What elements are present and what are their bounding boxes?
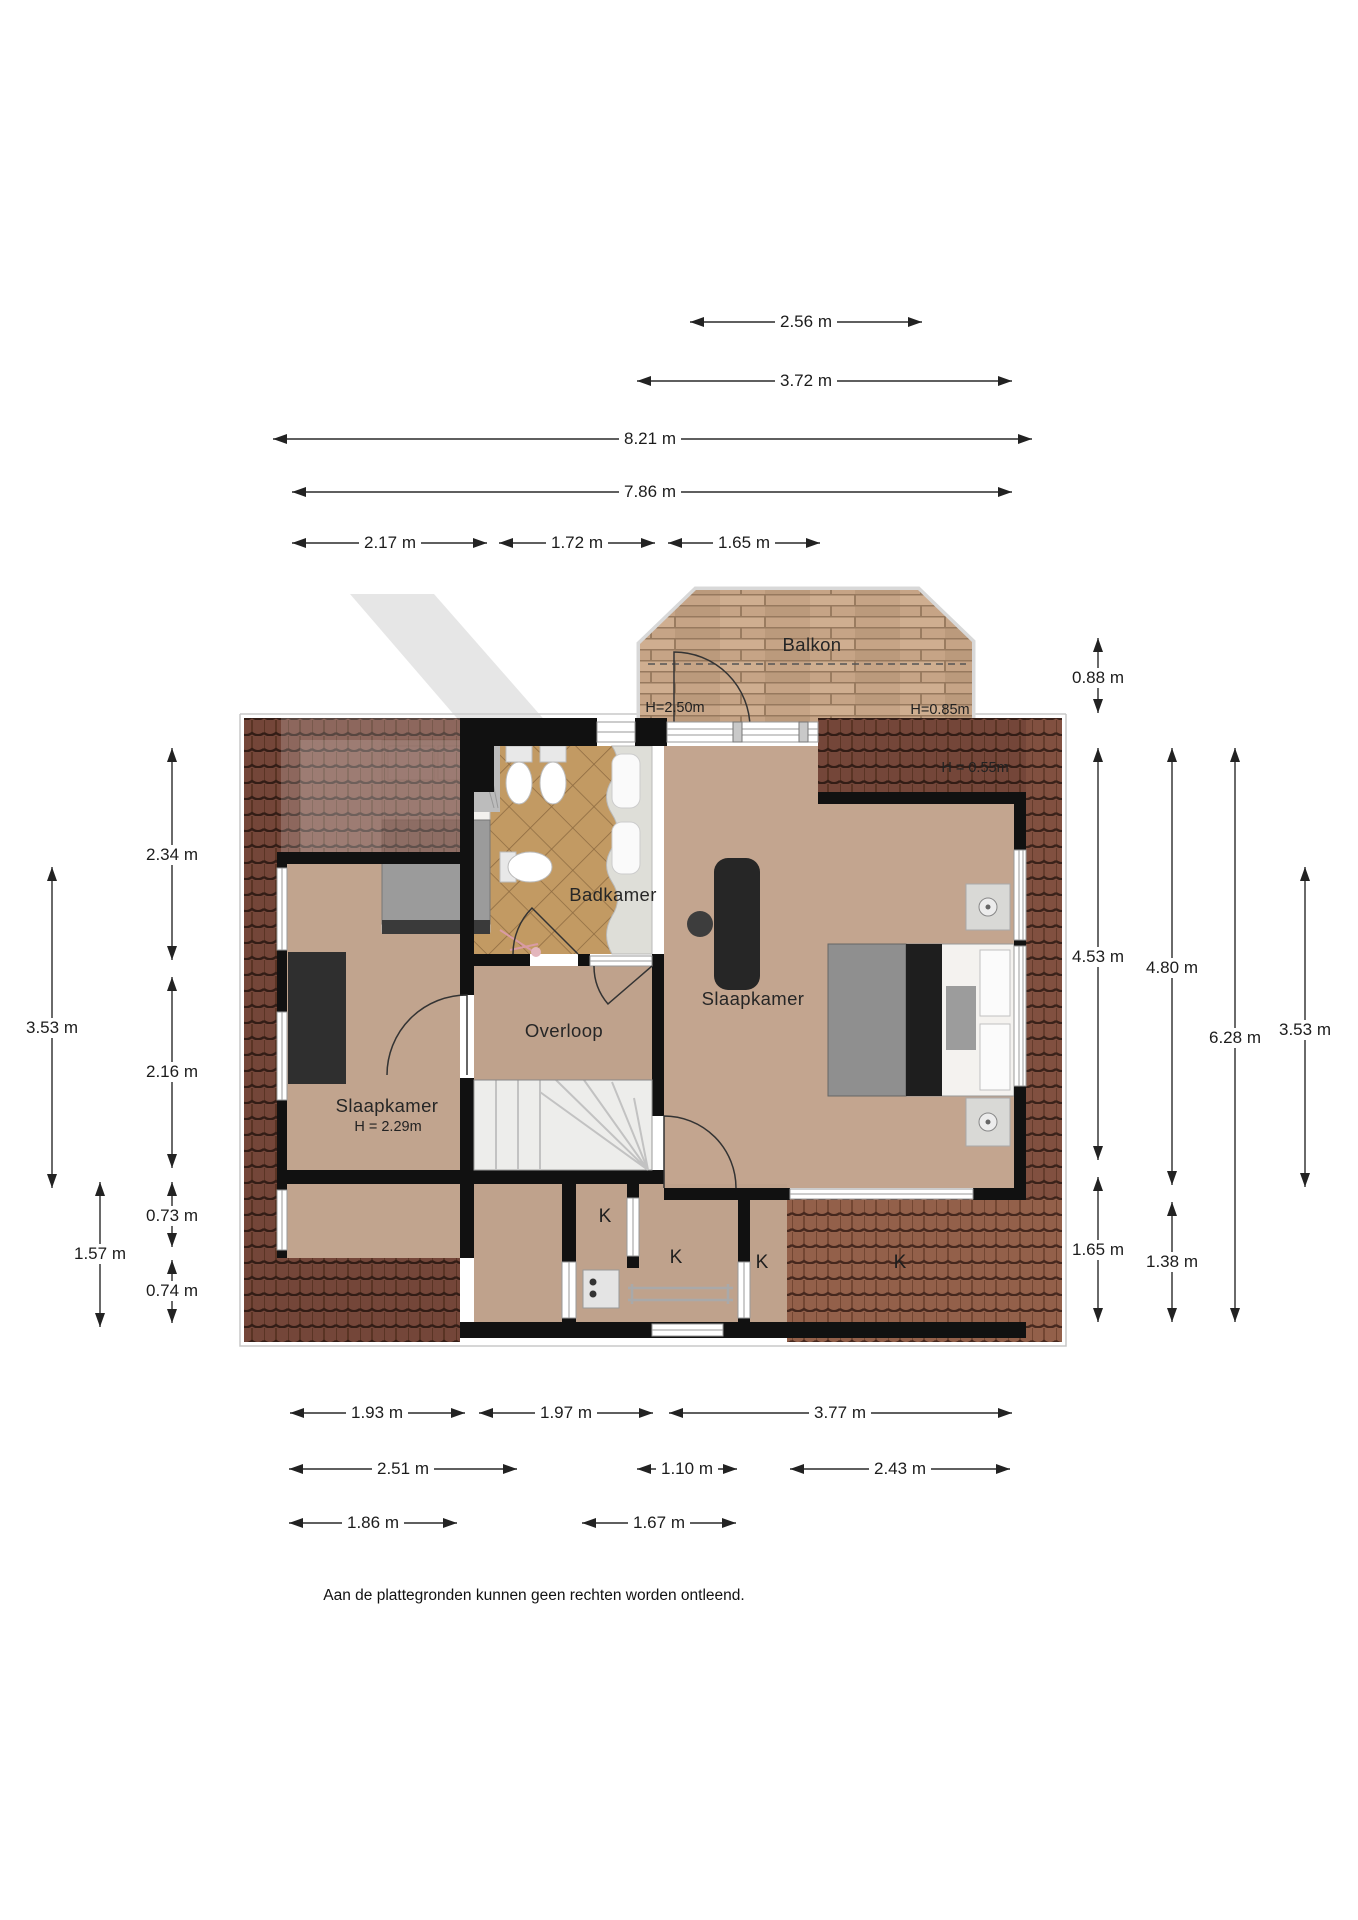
bed-right [828, 944, 1014, 1096]
dim-right-0-88: 0.88 m [1067, 668, 1129, 688]
room-label-balkon: Balkon [783, 634, 842, 656]
dim-bottom-2-43: 2.43 m [869, 1459, 931, 1479]
dim-bottom-1-86: 1.86 m [342, 1513, 404, 1533]
roof-bottom-right [787, 1198, 1062, 1342]
footer-disclaimer: Aan de plattegronden kunnen geen rechten… [323, 1587, 744, 1605]
wardrobe [288, 952, 346, 1084]
dormer-shadow [350, 594, 548, 724]
room-label-slaapkamer-right: Slaapkamer [702, 988, 805, 1010]
dim-top-2-17: 2.17 m [359, 533, 421, 553]
washing-machine [583, 1270, 619, 1308]
closet-label-3: K [756, 1252, 769, 1274]
dim-right-3-53: 3.53 m [1274, 1020, 1336, 1040]
height-label-balcony-door: H=2.50m [645, 700, 704, 716]
height-label-balcony-right: H=0.85m [910, 702, 969, 718]
dim-left-2-16: 2.16 m [141, 1062, 203, 1082]
closet-label-4: K [894, 1252, 907, 1274]
dim-right-1-38: 1.38 m [1141, 1252, 1203, 1272]
dim-bottom-2-51: 2.51 m [372, 1459, 434, 1479]
nightstand-top [966, 884, 1010, 930]
dim-right-4-80: 4.80 m [1141, 958, 1203, 978]
dim-top-1-65: 1.65 m [713, 533, 775, 553]
closet-label-1: K [599, 1206, 612, 1228]
roof-top-left-highlight [300, 740, 460, 852]
floorplan-page: 2.56 m 3.72 m 8.21 m 7.86 m 2.17 m 1.72 … [0, 0, 1358, 1920]
dim-left-3-53: 3.53 m [21, 1018, 83, 1038]
height-label-slaapkamer-left: H = 2.29m [354, 1119, 421, 1135]
room-label-badkamer: Badkamer [569, 884, 657, 906]
dim-top-7-86: 7.86 m [619, 482, 681, 502]
roof-top-right [818, 718, 1062, 800]
closet-label-2: K [670, 1247, 683, 1269]
dim-bottom-1-93: 1.93 m [346, 1403, 408, 1423]
dim-right-4-53: 4.53 m [1067, 947, 1129, 967]
dim-bottom-3-77: 3.77 m [809, 1403, 871, 1423]
stairs [474, 1080, 652, 1170]
bedroom-left-floor-strip [281, 1184, 460, 1260]
dim-top-2-56: 2.56 m [775, 312, 837, 332]
dim-left-0-74: 0.74 m [141, 1281, 203, 1301]
dim-left-1-57: 1.57 m [69, 1244, 131, 1264]
dim-top-1-72: 1.72 m [546, 533, 608, 553]
roof-bottom-left [244, 1258, 460, 1342]
dim-bottom-1-10: 1.10 m [656, 1459, 718, 1479]
dim-left-2-34: 2.34 m [141, 845, 203, 865]
room-label-overloop: Overloop [525, 1020, 603, 1042]
dim-bottom-1-97: 1.97 m [535, 1403, 597, 1423]
dim-bottom-1-67: 1.67 m [628, 1513, 690, 1533]
dim-top-3-72: 3.72 m [775, 371, 837, 391]
dim-right-6-28: 6.28 m [1204, 1028, 1266, 1048]
room-label-slaapkamer-left: Slaapkamer [336, 1095, 439, 1117]
dim-left-0-73: 0.73 m [141, 1206, 203, 1226]
height-label-roof-right: H = 0.55m [941, 760, 1008, 776]
dim-right-1-65: 1.65 m [1067, 1240, 1129, 1260]
nightstand-bottom [966, 1098, 1010, 1146]
dim-top-8-21: 8.21 m [619, 429, 681, 449]
